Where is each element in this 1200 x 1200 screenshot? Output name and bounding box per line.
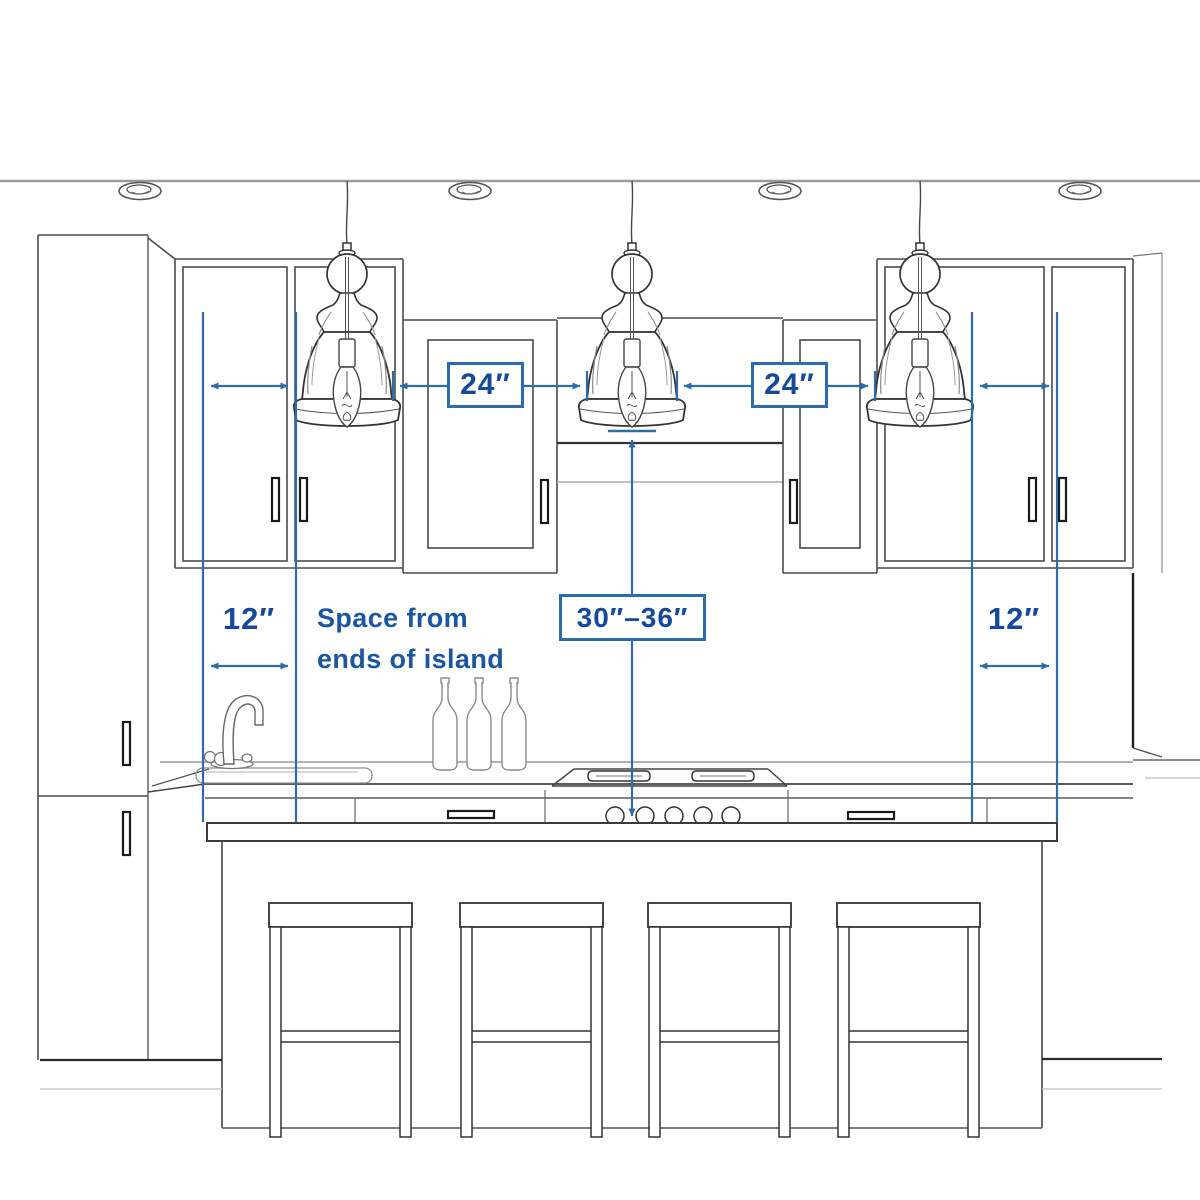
cabinet-door-handle <box>300 478 307 521</box>
note-line-2: ends of island <box>317 639 504 680</box>
pendant-spacing-label-left: 24″ <box>447 362 524 408</box>
cabinet-door-handle <box>1029 478 1036 521</box>
cabinet-door-handle <box>790 480 797 523</box>
ceiling <box>0 181 1200 200</box>
wine-bottle-icon <box>502 678 526 770</box>
cabinet-door-handle <box>272 478 279 521</box>
pendant-height-label: 30″–36″ <box>559 594 706 641</box>
recessed-light-icon <box>759 183 801 200</box>
kitchen-pendant-spacing-diagram: 24″ 24″ 30″–36″ 12″ 12″ Space from ends … <box>0 0 1200 1200</box>
sink <box>196 768 372 783</box>
bar-stool-3 <box>648 903 791 1137</box>
wine-bottle-icon <box>467 678 491 770</box>
recessed-light-icon <box>119 183 161 200</box>
recessed-light-icon <box>449 183 491 200</box>
kitchen-faucet <box>205 696 264 769</box>
pantry-door-handle <box>123 722 130 765</box>
pendant-light-2 <box>579 181 685 427</box>
island-end-spacing-note: Space from ends of island <box>317 598 504 680</box>
note-line-1: Space from <box>317 598 504 639</box>
island-end-spacing-label-right: 12″ <box>964 601 1064 637</box>
right-wall-corner <box>1133 573 1200 778</box>
pendant-spacing-label-right: 24″ <box>751 362 828 408</box>
wine-bottles <box>433 678 526 770</box>
upper-cabinet-left-of-hood <box>403 320 557 573</box>
upper-cabinet-right-of-hood <box>783 320 877 573</box>
pantry-door-handle <box>123 812 130 855</box>
bar-stool-4 <box>837 903 980 1137</box>
recessed-light-icon <box>1059 183 1101 200</box>
island-end-spacing-label-left: 12″ <box>199 601 299 637</box>
pantry-cabinet <box>38 235 175 1060</box>
pendant-light-1 <box>294 181 400 427</box>
bar-stool-2 <box>460 903 603 1137</box>
kitchen-island <box>207 823 1057 1128</box>
cabinet-door-handle <box>541 480 548 523</box>
bar-stool-1 <box>269 903 412 1137</box>
cabinet-door-handle <box>1059 478 1066 521</box>
wine-bottle-icon <box>433 678 457 770</box>
pendant-light-3 <box>867 181 973 427</box>
